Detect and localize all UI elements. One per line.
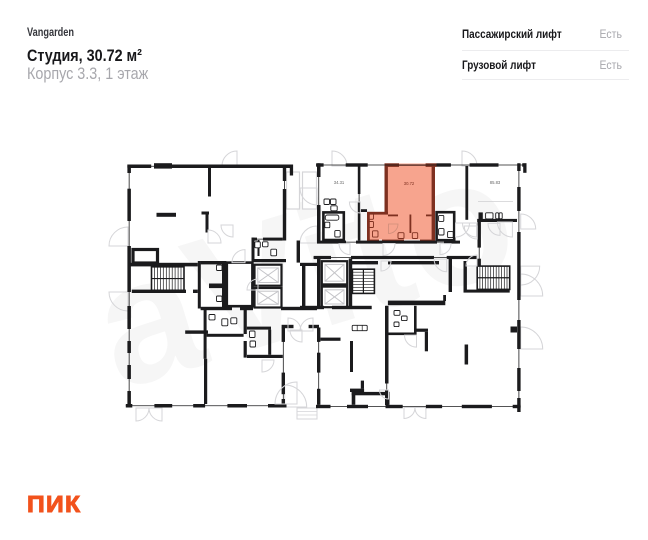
svg-text:85.83: 85.83: [490, 180, 501, 185]
svg-text:30.72: 30.72: [404, 181, 415, 186]
svg-text:34.31: 34.31: [334, 180, 345, 185]
